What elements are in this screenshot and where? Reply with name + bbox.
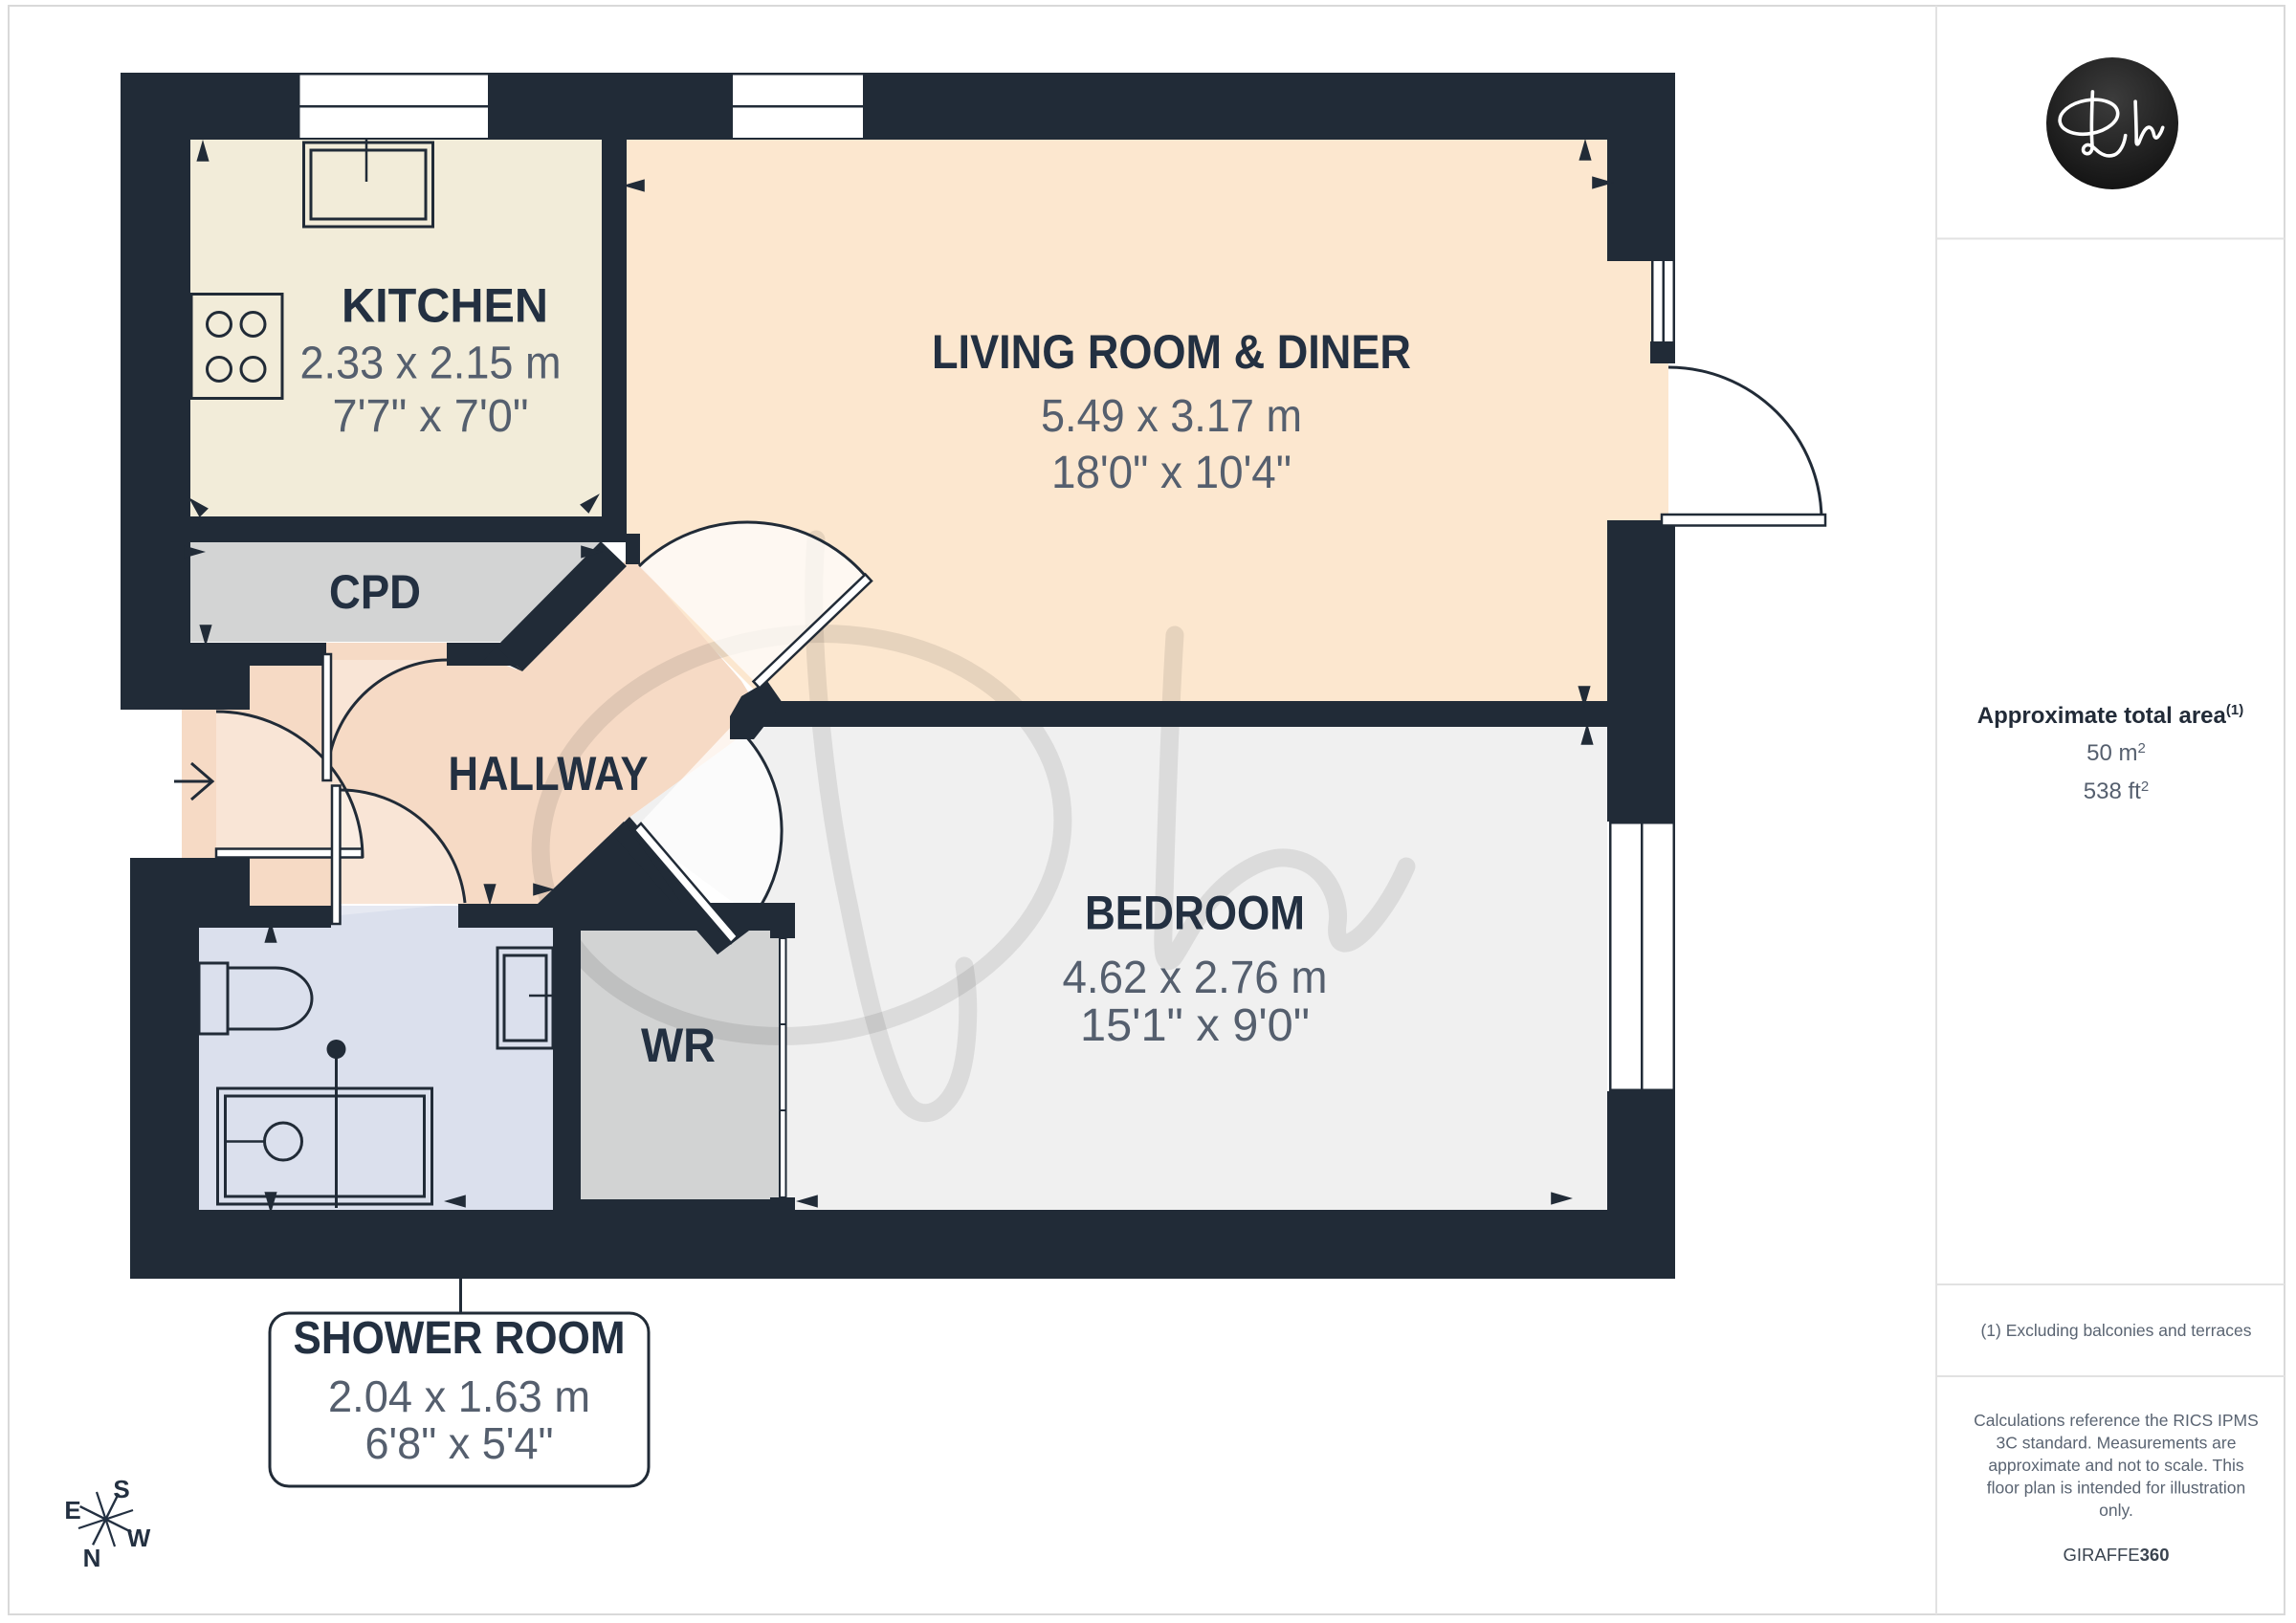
svg-text:4.62 x 2.76 m: 4.62 x 2.76 m bbox=[1063, 953, 1328, 1003]
svg-text:2.04 x 1.63 m: 2.04 x 1.63 m bbox=[328, 1371, 590, 1421]
svg-text:SHOWER ROOM: SHOWER ROOM bbox=[294, 1313, 626, 1364]
svg-text:3C standard. Measurements are: 3C standard. Measurements are bbox=[1997, 1434, 2237, 1453]
svg-text:WR: WR bbox=[641, 1019, 716, 1072]
svg-text:only.: only. bbox=[2099, 1501, 2133, 1520]
svg-text:5.49 x 3.17 m: 5.49 x 3.17 m bbox=[1041, 391, 1302, 442]
svg-text:W: W bbox=[127, 1524, 151, 1552]
svg-text:floor plan is intended for ill: floor plan is intended for illustration bbox=[1987, 1479, 2245, 1498]
svg-text:6'8" x 5'4": 6'8" x 5'4" bbox=[365, 1418, 554, 1468]
svg-text:15'1" x 9'0": 15'1" x 9'0" bbox=[1080, 1000, 1310, 1051]
svg-text:2.33 x 2.15 m: 2.33 x 2.15 m bbox=[300, 338, 562, 388]
svg-text:CPD: CPD bbox=[329, 565, 421, 619]
svg-text:GIRAFFE360: GIRAFFE360 bbox=[2063, 1545, 2169, 1565]
svg-text:N: N bbox=[83, 1544, 101, 1572]
svg-text:KITCHEN: KITCHEN bbox=[342, 279, 548, 333]
svg-text:E: E bbox=[64, 1496, 80, 1524]
svg-text:approximate and not to scale.: approximate and not to scale. This bbox=[1988, 1456, 2243, 1475]
svg-text:538 ft2: 538 ft2 bbox=[2084, 779, 2149, 804]
svg-text:(1) Excluding balconies and te: (1) Excluding balconies and terraces bbox=[1980, 1321, 2251, 1340]
svg-text:Approximate total area(1): Approximate total area(1) bbox=[1977, 702, 2243, 729]
svg-text:50 m2: 50 m2 bbox=[2086, 740, 2146, 766]
svg-text:7'7" x 7'0": 7'7" x 7'0" bbox=[333, 391, 529, 442]
svg-text:LIVING ROOM & DINER: LIVING ROOM & DINER bbox=[932, 325, 1411, 379]
svg-text:18'0" x 10'4": 18'0" x 10'4" bbox=[1051, 448, 1291, 498]
svg-text:BEDROOM: BEDROOM bbox=[1085, 887, 1305, 940]
svg-text:S: S bbox=[113, 1475, 129, 1503]
svg-text:HALLWAY: HALLWAY bbox=[449, 747, 649, 801]
svg-text:Calculations reference the RIC: Calculations reference the RICS IPMS bbox=[1974, 1411, 2259, 1430]
